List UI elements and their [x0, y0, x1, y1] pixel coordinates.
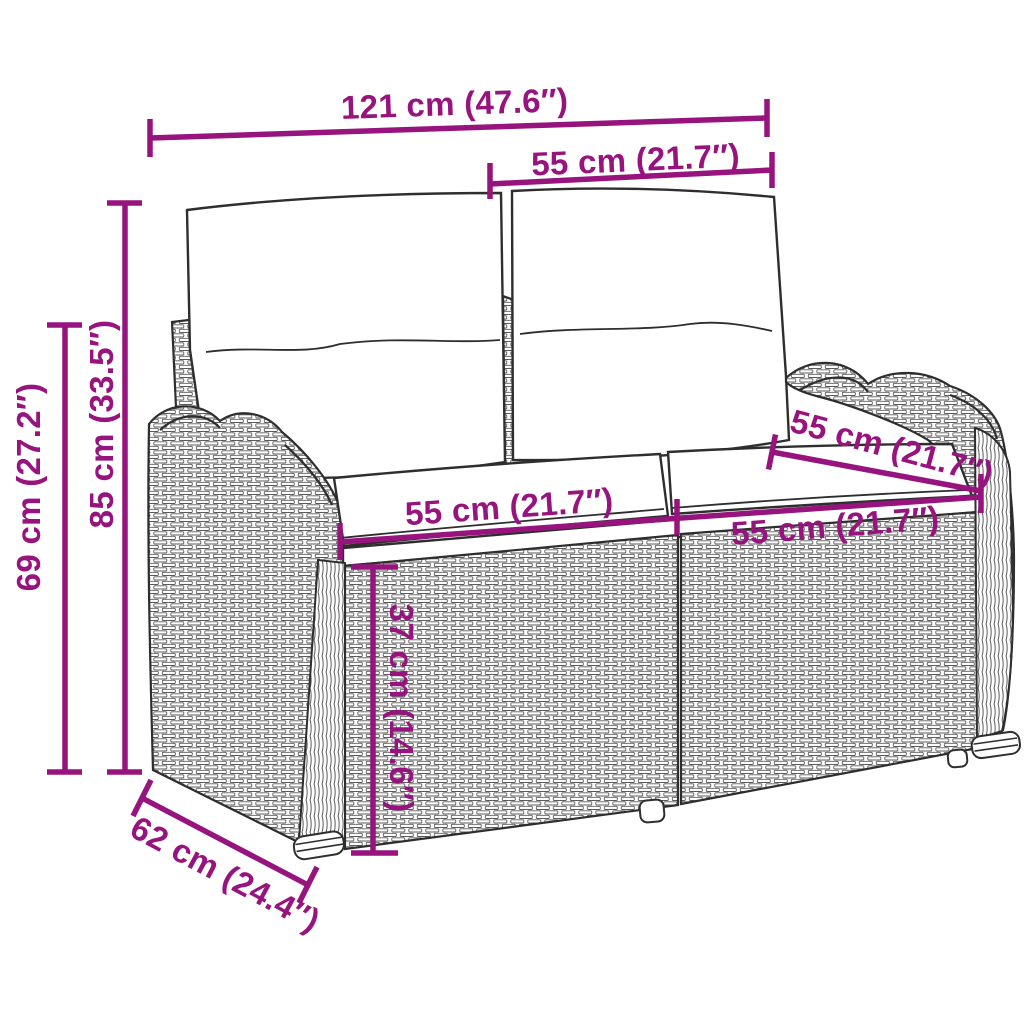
dim-seat-height-label: 37 cm (14.6″)	[383, 604, 420, 813]
dim-side-height-label: 69 cm (27.2″)	[10, 383, 47, 592]
dim-total-height-label: 85 cm (33.5″)	[83, 320, 120, 529]
foot-right-middle	[947, 749, 967, 768]
dim-total-height: 85 cm (33.5″)	[83, 203, 142, 772]
base-front-right-module	[681, 512, 978, 804]
dim-overall-width-label: 121 cm (47.6″)	[340, 81, 568, 126]
bench-diagram-svg: 121 cm (47.6″) 55 cm (21.7″) 85 cm (33.5…	[0, 0, 1024, 1024]
dim-side-height: 69 cm (27.2″)	[10, 325, 82, 772]
foot-middle	[639, 799, 665, 823]
product-dimension-diagram: 121 cm (47.6″) 55 cm (21.7″) 85 cm (33.5…	[0, 0, 1024, 1024]
back-cushion-right	[512, 189, 789, 461]
